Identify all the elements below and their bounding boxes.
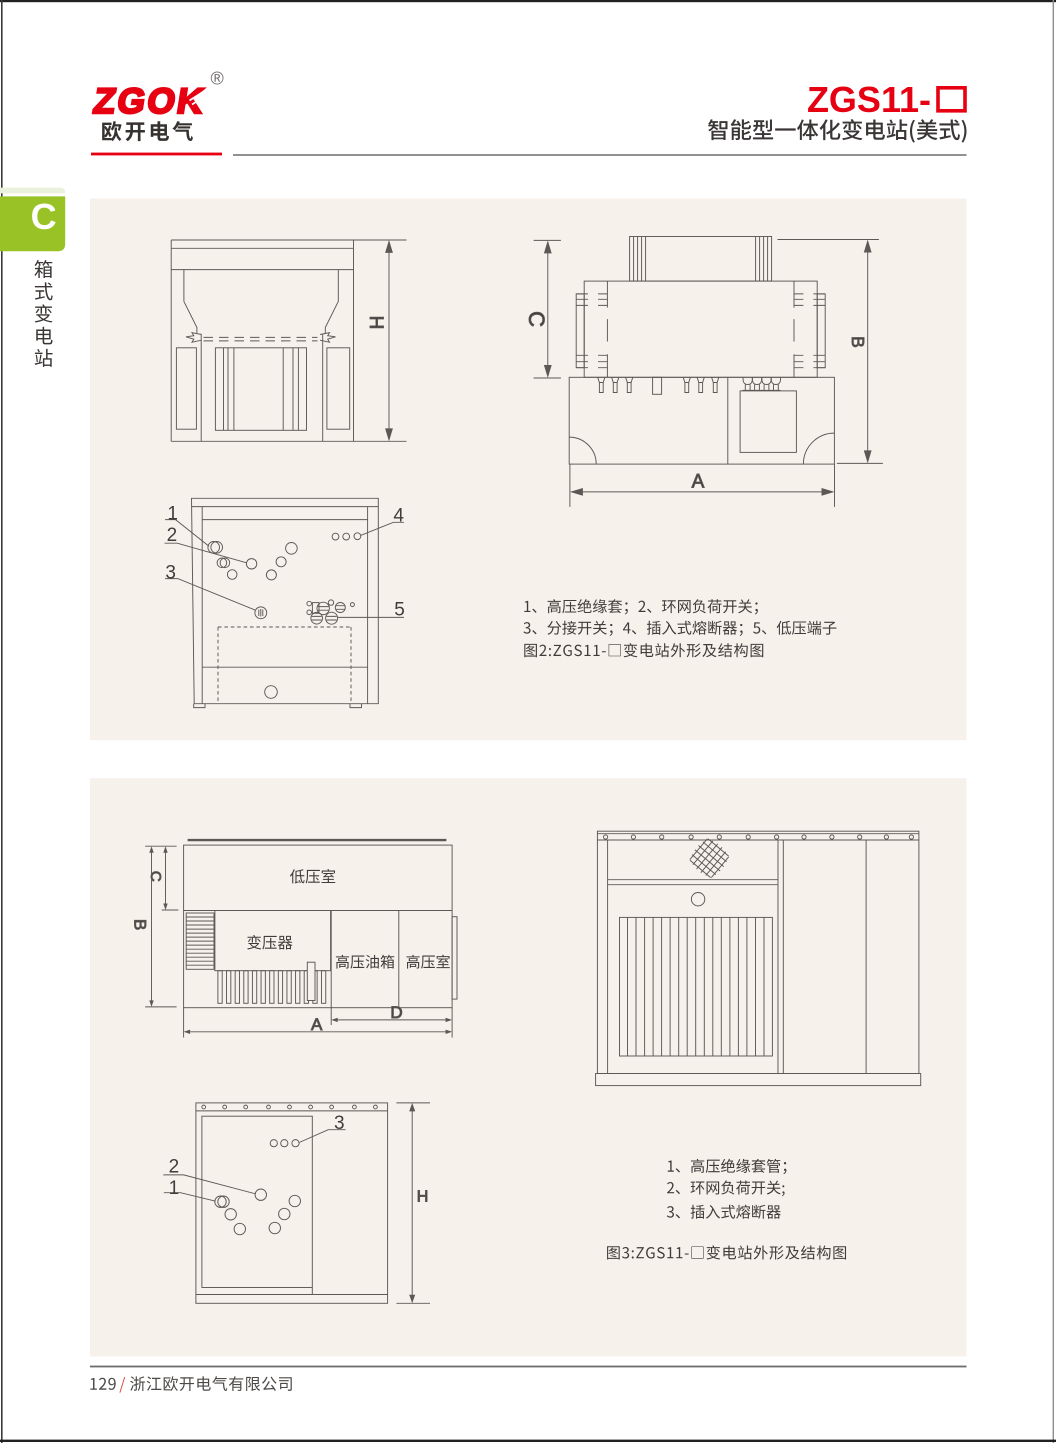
- svg-text:1: 1: [167, 503, 178, 524]
- svg-text:C: C: [31, 196, 57, 237]
- svg-text:H: H: [365, 316, 386, 330]
- svg-text:C: C: [147, 871, 164, 882]
- svg-text:3: 3: [165, 562, 176, 583]
- svg-text:2: 2: [167, 525, 178, 546]
- svg-text:B: B: [848, 336, 868, 348]
- svg-text:1: 1: [169, 1178, 180, 1199]
- svg-text:C: C: [524, 311, 549, 327]
- svg-text:3: 3: [334, 1113, 345, 1134]
- svg-text:®: ®: [211, 69, 224, 89]
- svg-text:2: 2: [169, 1157, 180, 1178]
- svg-text:4: 4: [393, 505, 404, 526]
- svg-text:B: B: [131, 919, 150, 930]
- svg-text:5: 5: [394, 600, 405, 621]
- svg-text:H: H: [417, 1189, 429, 1206]
- svg-text:D: D: [390, 1003, 402, 1022]
- svg-text:A: A: [311, 1015, 323, 1034]
- svg-text:ZGS11-: ZGS11-: [807, 79, 931, 120]
- svg-text:ZGOK: ZGOK: [91, 81, 209, 121]
- svg-text:A: A: [692, 472, 705, 493]
